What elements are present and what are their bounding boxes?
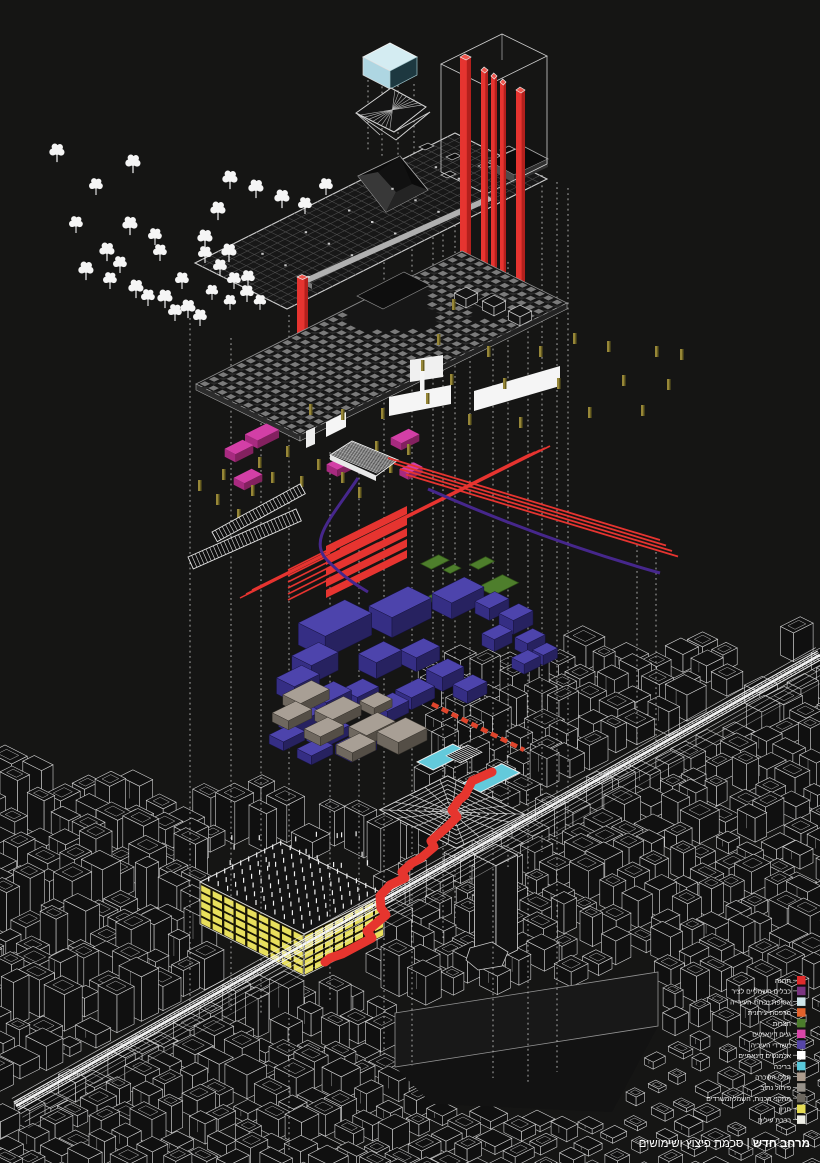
svg-text:מתקני הכנות, חשמל ומשרדים: מתקני הכנות, חשמל ומשרדים <box>706 1095 791 1103</box>
svg-text:מרחב חדש | סכמת פיצוץ ושימושים: מרחב חדש | סכמת פיצוץ ושימושים <box>639 1138 810 1150</box>
svg-text:פיתול נתיב: פיתול נתיב <box>760 1084 791 1092</box>
svg-text:גנים דינאמיים: גנים דינאמיים <box>752 1032 791 1039</box>
svg-text:אלמנטים דינאמיים: אלמנטים דינאמיים <box>738 1052 791 1060</box>
svg-text:בריכה: בריכה <box>774 1064 791 1071</box>
svg-text:משרדי העיריה: משרדי העיריה <box>751 1042 792 1049</box>
svg-text:חללי השכרה: חללי השכרה <box>755 1074 791 1082</box>
svg-text:חצרות: חצרות <box>773 1021 791 1028</box>
svg-text:מרפסת עירונית: מרפסת עירונית <box>748 1010 792 1017</box>
svg-text:תחנה: תחנה <box>775 978 791 985</box>
svg-text:כבלים חשמליים לציר: כבלים חשמליים לציר <box>732 988 792 996</box>
svg-text:רכבת עילית: רכבת עילית <box>758 1116 792 1124</box>
svg-text:חניון: חניון <box>779 1107 791 1114</box>
svg-text:אסיפת נבחרי העירייה: אסיפת נבחרי העירייה <box>730 999 792 1006</box>
